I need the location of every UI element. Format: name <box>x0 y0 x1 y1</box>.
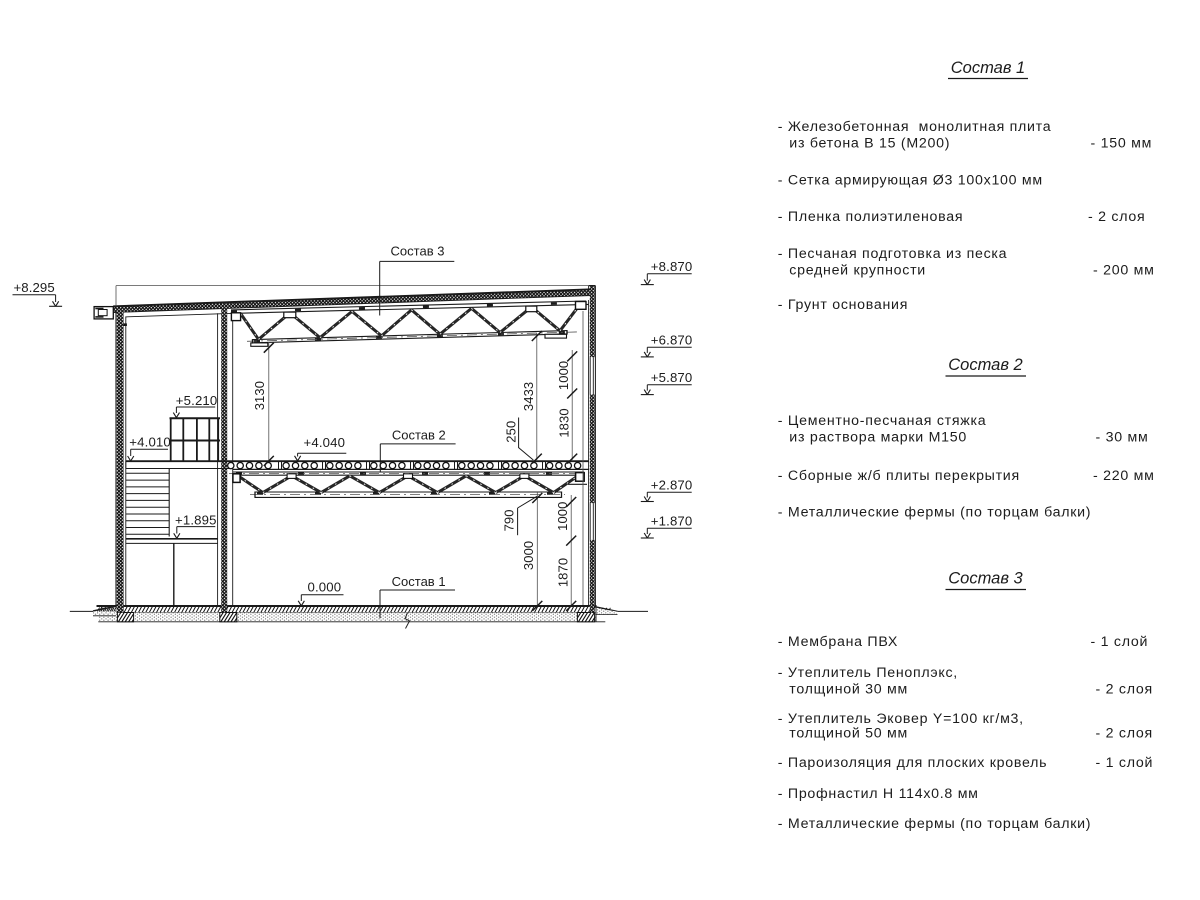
svg-text:250: 250 <box>504 421 519 443</box>
svg-text:- Утеплитель Пеноплэкс,: - Утеплитель Пеноплэкс, <box>778 665 958 681</box>
svg-text:1870: 1870 <box>556 558 571 587</box>
svg-text:+4.010: +4.010 <box>129 435 171 450</box>
svg-text:- Железобетонная монолитная п: - Железобетонная монолитная плита <box>778 119 1052 135</box>
svg-text:- 2 слоя: - 2 слоя <box>1096 725 1153 741</box>
svg-text:- 30 мм: - 30 мм <box>1096 429 1149 445</box>
svg-text:- Пленка полиэтиленовая: - Пленка полиэтиленовая <box>778 209 963 225</box>
svg-text:- Пароизоляция для плоских кро: - Пароизоляция для плоских кровель <box>778 755 1047 771</box>
svg-text:- Мембрана ПВХ: - Мембрана ПВХ <box>778 634 898 650</box>
svg-text:- Профнастил Н 114х0.8 мм: - Профнастил Н 114х0.8 мм <box>778 786 979 802</box>
svg-text:из бетона В 15 (М200): из бетона В 15 (М200) <box>789 136 950 152</box>
svg-text:3000: 3000 <box>521 541 536 570</box>
svg-text:+6.870: +6.870 <box>651 333 693 348</box>
svg-text:3130: 3130 <box>252 381 267 410</box>
svg-text:1830: 1830 <box>557 408 572 437</box>
svg-text:- Сетка армирующая Ø3 100х100: - Сетка армирующая Ø3 100х100 мм <box>778 172 1043 188</box>
svg-text:Состав 3: Состав 3 <box>948 570 1023 588</box>
svg-text:Состав 3: Состав 3 <box>391 243 445 258</box>
svg-text:Состав 2: Состав 2 <box>392 427 446 442</box>
svg-text:3433: 3433 <box>521 382 536 411</box>
svg-text:+1.895: +1.895 <box>175 512 217 527</box>
svg-text:из раствора марки М150: из раствора марки М150 <box>789 429 967 445</box>
svg-text:- Утеплитель Эковер Y=100 кг/м: - Утеплитель Эковер Y=100 кг/м3, <box>778 711 1024 727</box>
svg-text:790: 790 <box>502 509 517 531</box>
svg-text:- 220 мм: - 220 мм <box>1093 468 1155 484</box>
svg-text:1000: 1000 <box>556 361 571 390</box>
svg-text:- 200 мм: - 200 мм <box>1093 262 1155 278</box>
svg-text:+4.040: +4.040 <box>304 435 346 450</box>
svg-text:+5.210: +5.210 <box>176 393 218 408</box>
svg-text:толщиной 50 мм: толщиной 50 мм <box>789 725 908 741</box>
svg-text:Состав 2: Состав 2 <box>948 356 1022 374</box>
svg-text:- Цементно-песчаная стяжка: - Цементно-песчаная стяжка <box>778 413 987 429</box>
svg-text:- 150 мм: - 150 мм <box>1091 136 1153 152</box>
svg-text:- 1 слой: - 1 слой <box>1096 755 1154 771</box>
svg-text:1000: 1000 <box>555 502 570 531</box>
svg-text:- Песчаная подготовка из песка: - Песчаная подготовка из песка <box>778 246 1007 262</box>
svg-text:+8.295: +8.295 <box>14 280 55 295</box>
svg-text:- 1 слой: - 1 слой <box>1091 634 1149 650</box>
svg-text:- 2 слоя: - 2 слоя <box>1088 209 1145 225</box>
svg-text:- Металлические фермы (по торц: - Металлические фермы (по торцам балки) <box>778 505 1091 521</box>
svg-text:0.000: 0.000 <box>308 580 342 595</box>
svg-text:+1.870: +1.870 <box>651 514 693 529</box>
svg-text:толщиной 30 мм: толщиной 30 мм <box>789 681 908 697</box>
svg-text:Состав 1: Состав 1 <box>951 59 1025 77</box>
svg-text:- Грунт основания: - Грунт основания <box>778 297 908 313</box>
svg-text:- Металлические фермы (по торц: - Металлические фермы (по торцам балки) <box>778 816 1091 832</box>
svg-text:Состав 1: Состав 1 <box>392 574 446 589</box>
svg-text:- Сборные ж/б плиты перекрытия: - Сборные ж/б плиты перекрытия <box>778 468 1020 484</box>
svg-text:- 2 слоя: - 2 слоя <box>1096 681 1153 697</box>
svg-text:средней крупности: средней крупности <box>789 262 926 278</box>
svg-text:+5.870: +5.870 <box>651 370 693 385</box>
svg-text:+8.870: +8.870 <box>651 259 693 274</box>
svg-text:+2.870: +2.870 <box>651 478 693 493</box>
